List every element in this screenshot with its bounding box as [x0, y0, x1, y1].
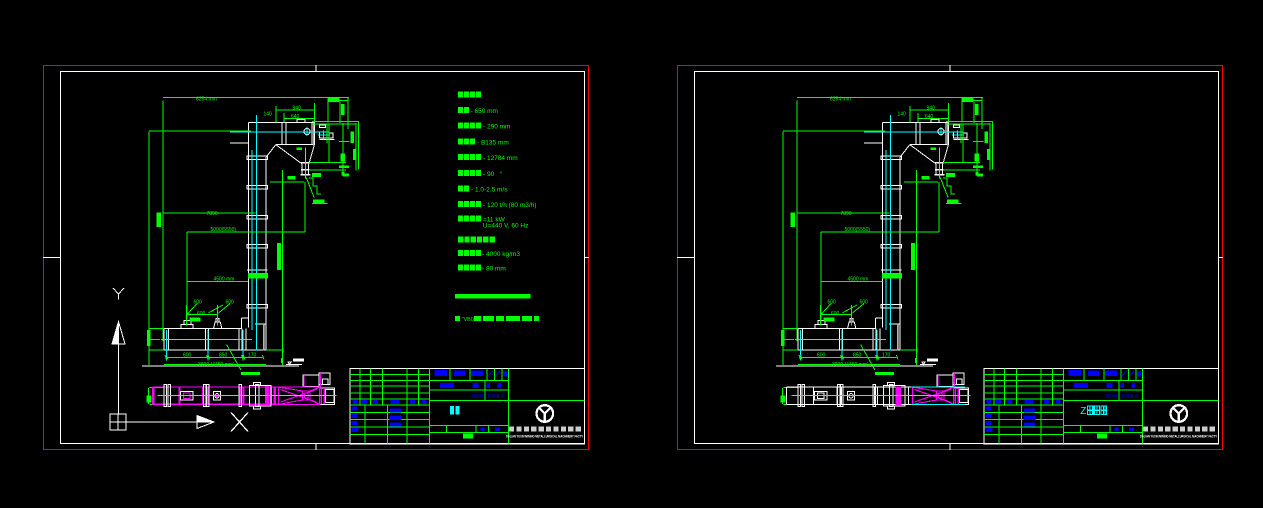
svg-text:- 290 mm: - 290 mm: [483, 124, 510, 131]
svg-text:- 80 mm: - 80 mm: [482, 266, 506, 273]
svg-text:- 4000 kg/m3: - 4000 kg/m3: [482, 251, 520, 258]
svg-text:- 650 mm: - 650 mm: [471, 108, 498, 115]
svg-text:- 1.0-2.5 m/s: - 1.0-2.5 m/s: [471, 187, 508, 194]
svg-text:- 90 °: - 90 °: [483, 170, 503, 178]
svg-text:- 12784 mm: - 12784 mm: [483, 155, 518, 162]
svg-text:- B135 mm: - B135 mm: [477, 139, 509, 146]
svg-text:Z: Z: [1080, 406, 1086, 417]
svg-text:- 120 t/h (80 m3/h): - 120 t/h (80 m3/h): [483, 202, 536, 209]
svg-text:"VB0": "VB0": [462, 317, 476, 323]
svg-text:U=440 V, 60 Hz: U=440 V, 60 Hz: [483, 223, 528, 230]
